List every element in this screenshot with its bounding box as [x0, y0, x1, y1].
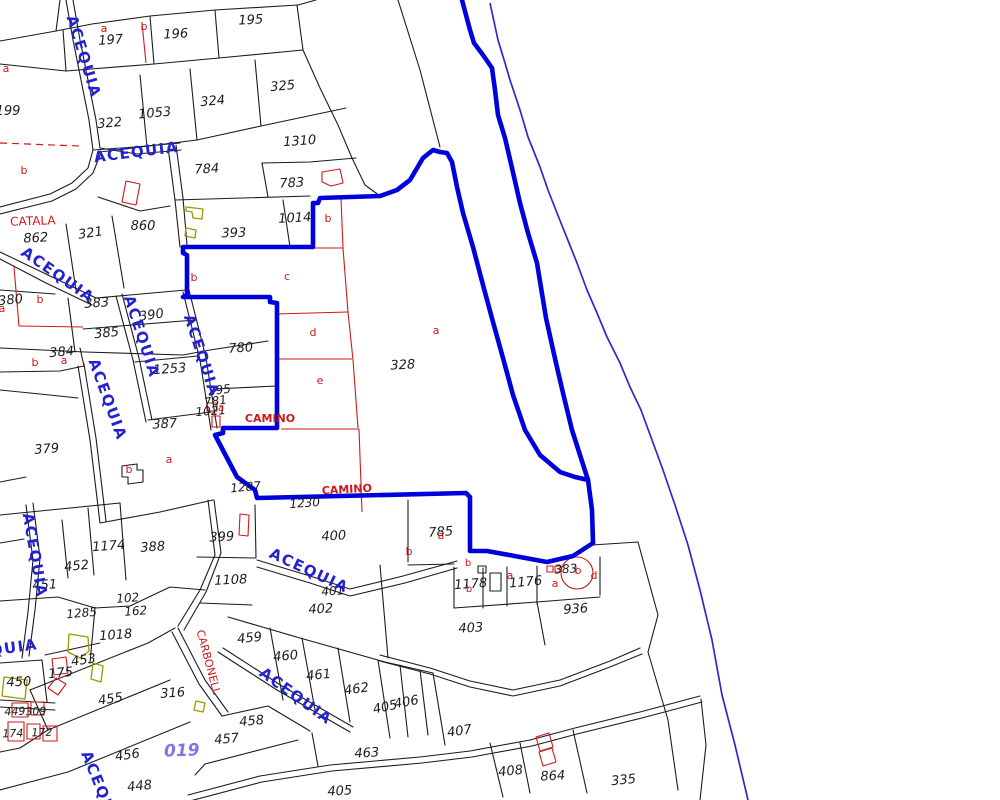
subparcel-letter: b — [406, 545, 413, 558]
subparcel-letter: b — [466, 584, 472, 595]
parcel-number: 860 — [131, 219, 156, 234]
parcel-number: 385 — [94, 325, 120, 343]
parcel-number: 402 — [308, 601, 334, 617]
parcel-number: 1174 — [92, 538, 126, 555]
parcel-number: 195 — [238, 12, 264, 28]
parcel-number: 456 — [114, 746, 141, 764]
subparcel-letter: b — [325, 212, 332, 225]
subparcel-letter: b — [32, 356, 39, 369]
parcel-number: 162 — [124, 603, 148, 619]
parcel-number: 462 — [343, 680, 370, 698]
waterway-label: ACEQUIA — [267, 544, 352, 596]
subparcel-letter: a — [218, 403, 224, 414]
parcel-number: 322 — [97, 115, 123, 132]
parcel-number: 448 — [127, 778, 153, 796]
waterway-label: ACEQUIA — [19, 511, 52, 598]
subparcel-letter: a — [166, 453, 173, 466]
cadastral-map: 1971961951993221053324325131078478339310… — [0, 0, 1000, 800]
subparcel-letter: a — [101, 22, 108, 35]
waterway-label: ACEQUIA — [85, 356, 131, 443]
parcel-number: 393 — [221, 226, 246, 242]
parcel-number: 309 — [25, 705, 46, 719]
parcel-number: 1018 — [99, 627, 133, 644]
subparcel-letter: d — [310, 326, 317, 339]
parcel-number: 936 — [563, 601, 589, 618]
parcel-number: 461 — [306, 667, 332, 685]
parcel-number: 452 — [64, 558, 90, 576]
subparcel-letter: b — [465, 558, 471, 569]
map-label-layer: 1971961951993221053324325131078478339310… — [0, 12, 637, 800]
parcel-number: 450 — [6, 675, 31, 691]
parcel-number: 784 — [194, 161, 220, 177]
subparcel-letter: b — [37, 293, 44, 306]
road-label: CAMINO — [321, 482, 372, 498]
parcel-number: 199 — [0, 104, 20, 119]
parcel-number: 335 — [611, 772, 637, 790]
parcel-number: 780 — [228, 340, 254, 357]
parcel-number: 316 — [160, 685, 186, 702]
subparcel-letter: a — [3, 62, 10, 75]
parcel-number: 1285 — [66, 605, 98, 622]
subparcel-letter: e — [317, 374, 324, 387]
parcel-number: 321 — [77, 224, 104, 242]
parcel-number: 458 — [239, 713, 265, 730]
parcel-number: 1310 — [283, 133, 317, 150]
parcel-number: 406 — [393, 693, 420, 712]
road-label: CAMINO — [245, 412, 295, 425]
subparcel-letter: c — [284, 270, 290, 283]
parcel-number: 449 — [4, 705, 25, 719]
parcel-number: 1108 — [214, 572, 248, 589]
parcel-number: 405 — [327, 783, 353, 799]
building-outlines-red — [8, 169, 593, 766]
parcel-number: 455 — [97, 690, 124, 708]
subparcel-letter: b — [126, 463, 133, 476]
parcel-number: 325 — [270, 78, 296, 95]
parcel-number: 379 — [34, 441, 60, 458]
parcel-number: 1176 — [509, 574, 543, 592]
parcel-number: 407 — [446, 722, 473, 740]
parcel-number: 457 — [214, 731, 241, 748]
parcel-number: 387 — [152, 416, 178, 432]
subparcel-letter: b — [575, 564, 582, 577]
parcel-number: 1053 — [138, 105, 172, 123]
parcel-number: 196 — [163, 26, 189, 42]
parcel-number: 864 — [540, 768, 566, 784]
sheet-number-label: 019 — [164, 740, 200, 761]
parcel-number: 175 — [48, 665, 74, 683]
subparcel-letter: a — [507, 569, 514, 582]
parcel-number: 1230 — [289, 495, 321, 511]
parcel-number: 463 — [354, 745, 380, 761]
parcel-number: 1014 — [278, 210, 312, 227]
parcel-number: 403 — [458, 620, 484, 636]
parcel-number: 324 — [200, 93, 226, 110]
waterway-label: ACEQUIA — [63, 13, 105, 100]
parcel-number: 783 — [279, 175, 305, 191]
subparcel-letter: a — [61, 354, 68, 367]
parcel-number: 408 — [498, 763, 524, 781]
subparcel-letter: a — [433, 324, 440, 337]
parcel-number: 172 — [31, 726, 52, 740]
subparcel-letter: b — [21, 164, 28, 177]
subparcel-letter: a — [0, 302, 5, 315]
parcel-number: 328 — [390, 357, 416, 373]
place-name-label: CARBONELL — [194, 628, 224, 696]
selected-parcel-boundary-blue — [183, 0, 593, 562]
parcel-number: 1287 — [230, 479, 262, 496]
cadastral-map-viewport: 1971961951993221053324325131078478339310… — [0, 0, 1000, 800]
waterway-label: ACEQUIA — [93, 138, 180, 166]
parcel-number: 399 — [209, 529, 235, 545]
municipal-limit-thin-blue — [490, 3, 748, 800]
subparcel-letter: b — [191, 271, 198, 284]
parcel-number: 174 — [2, 727, 23, 741]
subparcel-letter: d — [591, 569, 598, 582]
parcel-number: 459 — [237, 630, 263, 648]
subparcel-letter: a — [552, 577, 559, 590]
parcel-number: 400 — [321, 528, 347, 544]
subparcel-letter: a — [438, 529, 445, 542]
parcel-number: 460 — [273, 648, 299, 665]
subparcel-letter: b — [141, 20, 148, 33]
waterway-label: ACEQUIA — [180, 312, 224, 399]
place-name-label: CATALA — [10, 213, 57, 229]
parcel-number: 388 — [140, 539, 166, 556]
